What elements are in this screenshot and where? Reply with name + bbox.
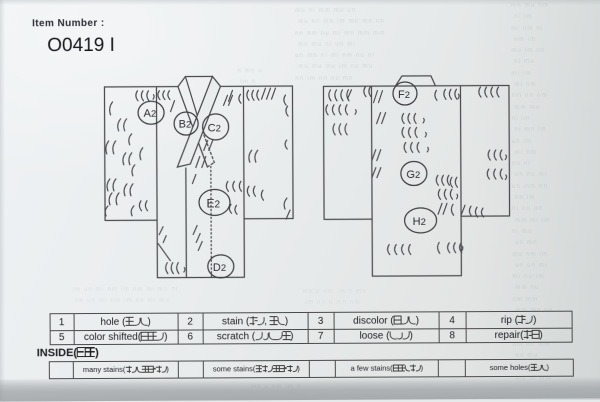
svg-text:E2: E2 [206, 196, 220, 210]
svg-text:A2: A2 [144, 108, 157, 120]
svg-text:H2: H2 [413, 216, 426, 228]
svg-text:B2: B2 [179, 119, 192, 131]
svg-text:F2: F2 [398, 89, 410, 101]
svg-text:D2: D2 [213, 262, 226, 274]
svg-text:G2: G2 [406, 169, 420, 181]
svg-text:C2: C2 [208, 122, 221, 134]
